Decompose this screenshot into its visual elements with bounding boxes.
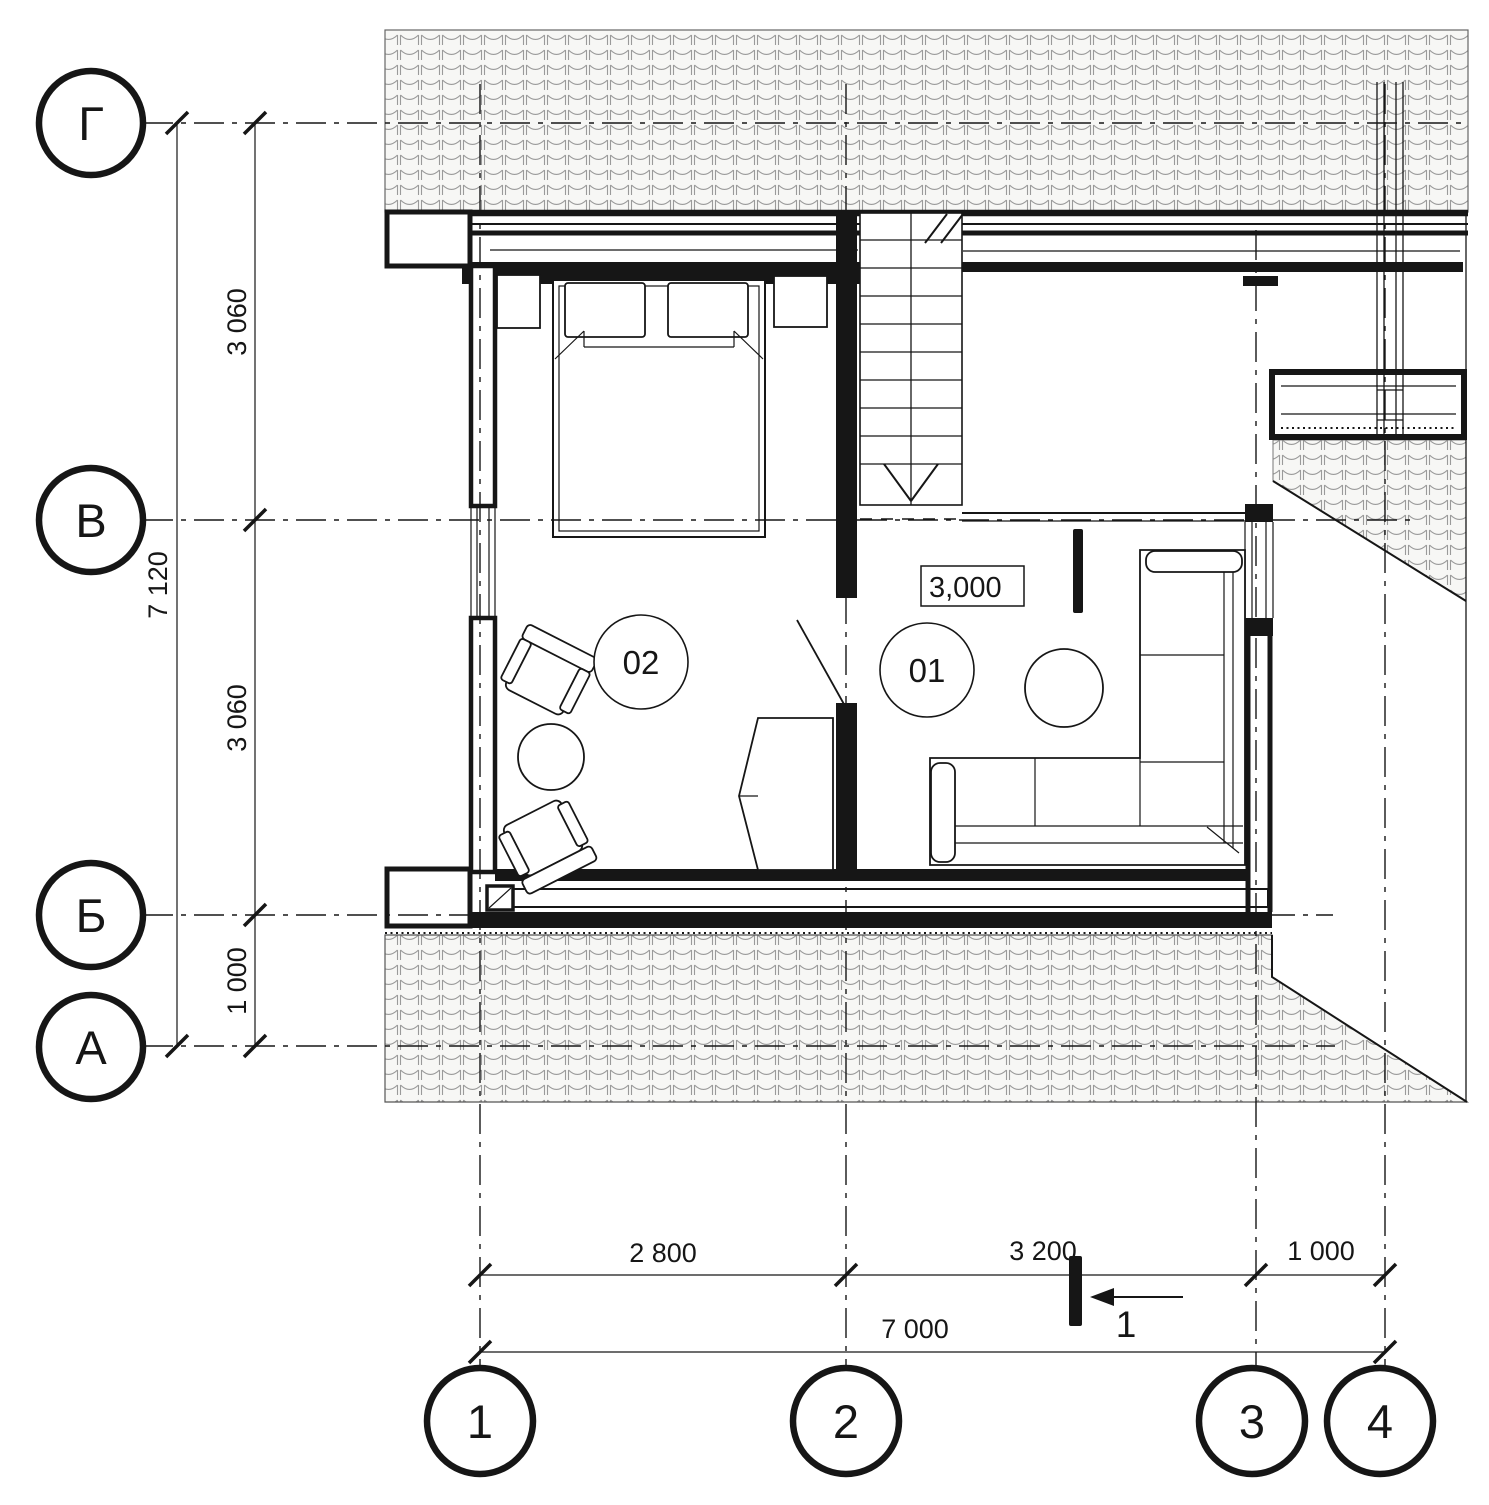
dim-bottom-total: 7 000 <box>881 1314 949 1344</box>
axis-label-3: 3 <box>1239 1395 1265 1448</box>
axis-circle-b: Б <box>39 863 143 967</box>
south-wall-band <box>385 869 1272 933</box>
sofa-armrest-left <box>931 763 955 862</box>
dim-bottom-23: 3 200 <box>1009 1236 1077 1266</box>
east-window <box>1245 522 1273 618</box>
section-marker: 1 <box>1069 1256 1183 1345</box>
eaves-box-top-left <box>387 212 470 266</box>
nightstand-left <box>497 275 540 328</box>
axis-label-a: А <box>75 1021 107 1074</box>
west-wall <box>471 266 495 872</box>
armchair-top <box>498 624 598 720</box>
axis-circle-1: 1 <box>427 1368 533 1474</box>
door-leaf <box>797 620 845 706</box>
side-table <box>518 724 584 790</box>
axis-label-4: 4 <box>1367 1395 1393 1448</box>
axis-label-g: Г <box>78 97 103 150</box>
room-number-01: 01 <box>909 652 946 689</box>
nightstand-right <box>774 276 827 327</box>
section-label: 1 <box>1116 1304 1137 1345</box>
room-number-02: 02 <box>623 644 660 681</box>
west-window <box>471 506 495 618</box>
drawing-sheet: 3,000 01 02 3 060 3 060 1 000 7 120 2 80… <box>0 0 1489 1505</box>
balcony-parapet <box>1272 372 1464 437</box>
dim-left-ba: 1 000 <box>222 947 252 1015</box>
dim-bottom-34: 1 000 <box>1287 1236 1355 1266</box>
eaves-box-bottom-left <box>387 869 470 926</box>
dim-left-vb: 3 060 <box>222 684 252 752</box>
floor-plan-svg: 3,000 01 02 3 060 3 060 1 000 7 120 2 80… <box>0 0 1489 1505</box>
tv <box>1073 529 1083 613</box>
axis-label-1: 1 <box>467 1395 493 1448</box>
wall-stub <box>1243 276 1278 286</box>
wardrobe <box>739 718 833 870</box>
room-label-02: 02 <box>594 615 688 709</box>
axis-circle-4: 4 <box>1327 1368 1433 1474</box>
room-label-01: 01 <box>880 623 974 717</box>
coffee-table <box>1025 649 1103 727</box>
roof-hatch-bottom <box>385 935 1467 1102</box>
roof-hatch-top <box>385 30 1468 212</box>
sofa-armrest-top <box>1146 551 1242 572</box>
level-mark: 3,000 <box>921 566 1024 606</box>
axis-label-v: В <box>75 494 106 547</box>
axis-label-b: Б <box>76 889 107 942</box>
pillow-left <box>565 283 645 337</box>
dim-left-total: 7 120 <box>143 551 173 619</box>
axis-circle-3: 3 <box>1199 1368 1305 1474</box>
axis-circle-g: Г <box>39 71 143 175</box>
axis-label-2: 2 <box>833 1395 859 1448</box>
stairs <box>860 213 963 505</box>
pillow-right <box>668 283 748 337</box>
axis-circle-a: А <box>39 995 143 1099</box>
dimensions-bottom: 2 800 3 200 1 000 7 000 <box>469 1236 1396 1363</box>
bed <box>553 280 765 537</box>
dim-left-gv: 3 060 <box>222 288 252 356</box>
dim-bottom-12: 2 800 <box>629 1238 697 1268</box>
axis-circle-v: В <box>39 468 143 572</box>
axis-circle-2: 2 <box>793 1368 899 1474</box>
level-mark-value: 3,000 <box>929 572 1002 604</box>
